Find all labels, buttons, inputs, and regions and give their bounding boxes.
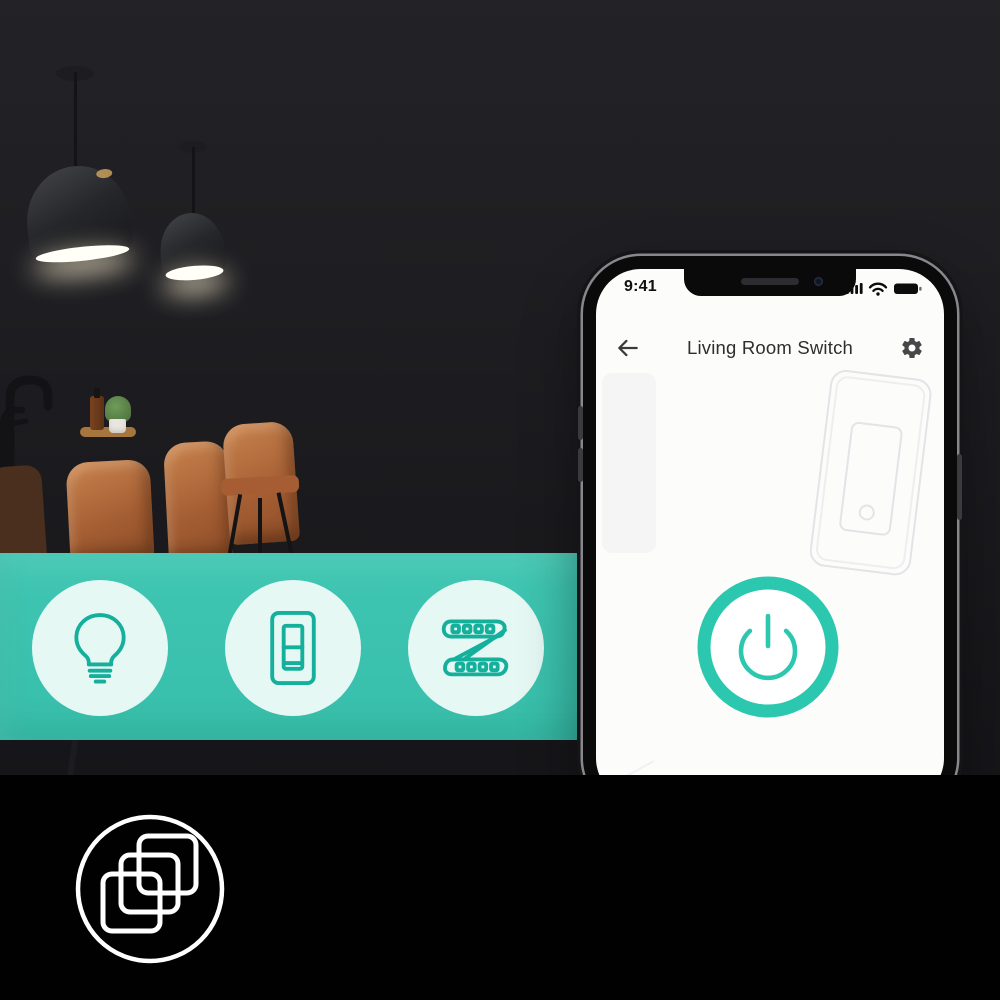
lamp-brass-detail [96, 168, 113, 179]
bar-stool [163, 440, 233, 561]
settings-button[interactable] [900, 336, 924, 360]
cutting-board [80, 427, 136, 437]
lamp-shade [157, 210, 226, 277]
pendant-lamp [0, 0, 220, 300]
soap-bottle [90, 396, 104, 430]
app-screen: 9:41 [596, 269, 944, 803]
battery-icon [894, 284, 922, 295]
phone-notch [684, 269, 856, 296]
screen-background-panel [602, 373, 656, 553]
kitchen-faucet [0, 368, 70, 468]
led-strip-icon [433, 605, 519, 691]
back-button[interactable] [615, 335, 641, 361]
status-icons [846, 281, 922, 296]
phone-volume-button [578, 406, 583, 440]
smartphone-mockup: 9:41 [583, 256, 957, 816]
lamp-cord [74, 72, 77, 174]
lamp-cord [192, 147, 195, 219]
smart-bulb-icon [57, 605, 143, 691]
lamp-glow [35, 242, 130, 266]
page-title: Living Room Switch [596, 337, 944, 359]
phone-volume-button [578, 448, 583, 482]
status-time: 9:41 [624, 278, 657, 296]
lamp-glow [165, 263, 224, 282]
feature-bulb-badge [32, 580, 168, 716]
product-feature-image: 9:41 [0, 0, 1000, 1000]
bar-stool [0, 464, 47, 561]
bar-stool [65, 459, 154, 562]
smart-switch-icon [250, 605, 336, 691]
power-button[interactable] [688, 567, 848, 727]
feature-switch-badge [225, 580, 361, 716]
front-camera [814, 277, 823, 286]
grouping-badge [73, 812, 227, 966]
info-panel: Grouping Combine your smart switch with … [0, 775, 1000, 1000]
plant-pot [109, 419, 126, 433]
grouping-stacked-squares-icon [103, 836, 196, 931]
gear-icon [902, 338, 921, 358]
lamp-shade [22, 161, 135, 261]
phone-side-button [957, 454, 962, 520]
speaker-grille [741, 278, 799, 285]
wifi-icon [870, 284, 886, 296]
wall-switch-illustration [810, 363, 936, 593]
stool-leg [258, 498, 262, 556]
soap-pump [94, 388, 100, 398]
feature-ledstrip-badge [408, 580, 544, 716]
